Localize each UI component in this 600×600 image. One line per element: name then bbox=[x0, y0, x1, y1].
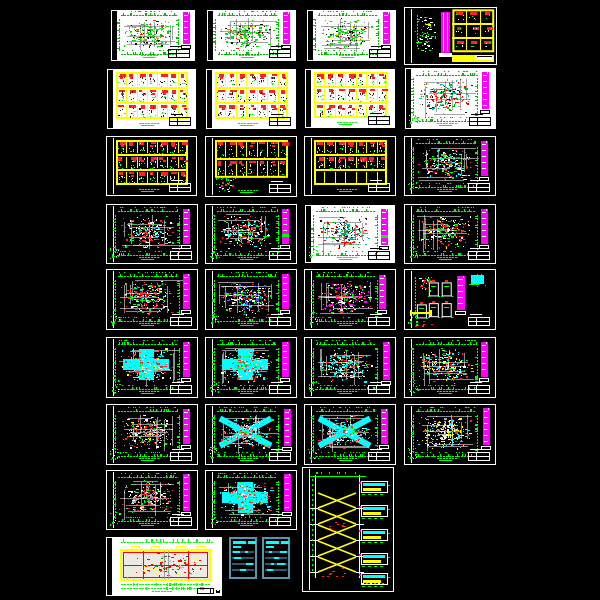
sheet-r3c3-detail-grid-empty-row[interactable] bbox=[304, 136, 396, 196]
sheet-r1c3-plan-green[interactable] bbox=[306, 9, 397, 62]
sheet-stair-section[interactable] bbox=[302, 467, 394, 592]
sheet-r7c3-plan-canvas bbox=[304, 404, 396, 465]
sheet-r7c2-plan-cyan-x[interactable] bbox=[205, 404, 297, 465]
sheet-r2c4-plan-cyan-red[interactable] bbox=[404, 67, 497, 130]
sheet-r4c4-plan[interactable] bbox=[404, 204, 496, 264]
sheet-r3c1-detail-grid[interactable] bbox=[106, 136, 197, 196]
sheet-r4c2-plan-canvas bbox=[205, 204, 297, 264]
sheet-r5c2-plan[interactable] bbox=[205, 269, 297, 330]
sheet-r5c3-plan-canvas bbox=[304, 269, 396, 330]
sheet-r5c2-plan-canvas bbox=[205, 269, 297, 330]
sheet-r4c1-plan[interactable] bbox=[106, 204, 198, 264]
sheet-r2c3-detail-grid-canvas bbox=[304, 68, 396, 129]
sheet-r3c4-plan-cyan-red-green-canvas bbox=[404, 136, 496, 196]
sheet-r5c3-plan[interactable] bbox=[304, 269, 396, 330]
sheet-r5c1-plan-canvas bbox=[106, 269, 198, 330]
sheet-r2c1-detail-grid[interactable] bbox=[106, 68, 197, 130]
sheet-r1c2-plan-green-canvas bbox=[206, 9, 297, 62]
sheet-r4c3-plan-white[interactable] bbox=[304, 204, 396, 264]
sheet-architectural-plan-wide-canvas bbox=[105, 536, 223, 597]
sheet-r8c1-plan-canvas bbox=[106, 470, 198, 530]
sheet-r8c2-plan-canvas bbox=[205, 470, 297, 530]
sheet-r8c2-plan[interactable] bbox=[205, 470, 297, 530]
sheet-r6c1-plan[interactable] bbox=[106, 337, 198, 398]
sheet-r6c1-plan-canvas bbox=[106, 337, 198, 398]
sheet-r2c4-plan-cyan-red-canvas bbox=[404, 67, 497, 130]
sheet-r6c3-plan-canvas bbox=[304, 337, 396, 398]
sheet-r6c2-plan-cyan-cross-canvas bbox=[205, 337, 297, 398]
sheet-r3c3-detail-grid-empty-row-canvas bbox=[304, 136, 396, 196]
sheet-r7c2-plan-cyan-x-canvas bbox=[205, 404, 297, 465]
sheet-r3c2-detail-grid-partial-canvas bbox=[205, 136, 297, 197]
sheet-r6c3-plan[interactable] bbox=[304, 337, 396, 398]
sheet-r5c1-plan[interactable] bbox=[106, 269, 198, 330]
sheet-notes-tables-canvas bbox=[228, 536, 291, 582]
sheet-r1c2-plan-green[interactable] bbox=[206, 9, 297, 62]
sheet-r4c1-plan-canvas bbox=[106, 204, 198, 264]
sheet-r7c4-plan-canvas bbox=[404, 404, 496, 465]
sheet-r4c4-plan-canvas bbox=[404, 204, 496, 264]
sheet-r1c4-column-details-grid-canvas bbox=[404, 7, 497, 65]
sheet-r2c1-detail-grid-canvas bbox=[106, 68, 197, 130]
sheet-stair-section-canvas bbox=[302, 467, 394, 592]
sheet-architectural-plan-wide[interactable] bbox=[105, 536, 223, 597]
sheet-r5c4-section-details[interactable] bbox=[404, 269, 496, 330]
sheet-r3c2-detail-grid-partial[interactable] bbox=[205, 136, 297, 197]
sheet-r1c4-column-details-grid[interactable] bbox=[404, 7, 497, 65]
sheet-r1c3-plan-green-canvas bbox=[306, 9, 397, 62]
sheet-r1c1-plan-green[interactable] bbox=[110, 9, 196, 62]
sheet-r7c4-plan[interactable] bbox=[404, 404, 496, 465]
sheet-r2c3-detail-grid[interactable] bbox=[304, 68, 396, 129]
sheet-r6c4-plan[interactable] bbox=[404, 337, 496, 398]
sheet-r2c2-detail-grid[interactable] bbox=[205, 68, 297, 130]
sheet-r7c1-plan-canvas bbox=[106, 404, 198, 465]
sheet-r4c2-plan[interactable] bbox=[205, 204, 297, 264]
sheet-r3c4-plan-cyan-red-green[interactable] bbox=[404, 136, 496, 196]
sheet-r7c1-plan[interactable] bbox=[106, 404, 198, 465]
sheet-r1c1-plan-green-canvas bbox=[110, 9, 196, 62]
sheet-r7c3-plan[interactable] bbox=[304, 404, 396, 465]
sheet-r4c3-plan-white-canvas bbox=[304, 204, 396, 264]
sheet-grid bbox=[0, 0, 600, 600]
sheet-notes-tables[interactable] bbox=[228, 536, 291, 582]
sheet-r6c2-plan-cyan-cross[interactable] bbox=[205, 337, 297, 398]
sheet-r8c1-plan[interactable] bbox=[106, 470, 198, 530]
sheet-r5c4-section-details-canvas bbox=[404, 269, 496, 330]
sheet-r3c1-detail-grid-canvas bbox=[106, 136, 197, 196]
sheet-r6c4-plan-canvas bbox=[404, 337, 496, 398]
sheet-r2c2-detail-grid-canvas bbox=[205, 68, 297, 130]
